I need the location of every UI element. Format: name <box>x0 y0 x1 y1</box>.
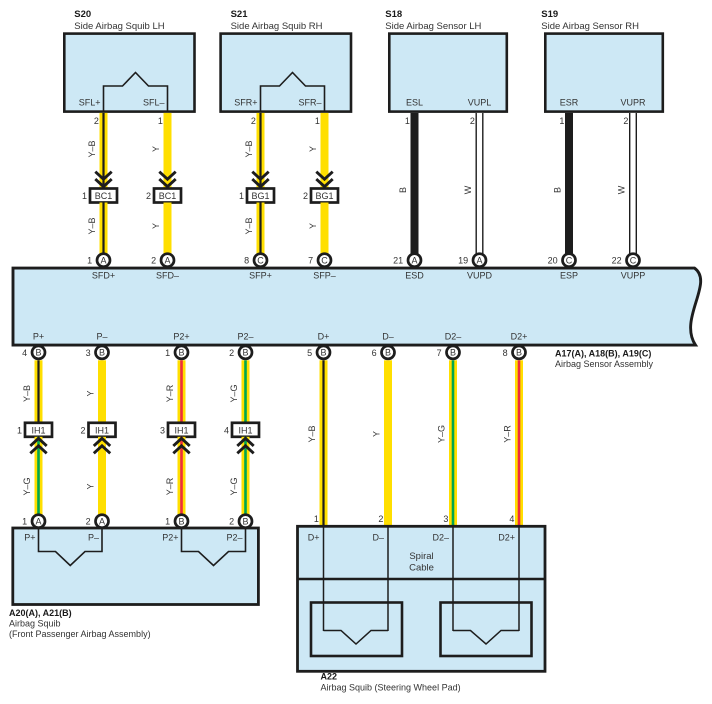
svg-text:Y–B: Y–B <box>244 217 254 234</box>
svg-text:6: 6 <box>372 348 377 358</box>
svg-text:BG1: BG1 <box>315 191 333 201</box>
svg-text:7: 7 <box>437 348 442 358</box>
svg-text:BC1: BC1 <box>95 191 113 201</box>
svg-text:W: W <box>617 185 627 194</box>
svg-text:B: B <box>99 348 105 358</box>
svg-text:D–: D– <box>372 532 384 542</box>
svg-text:S18: S18 <box>385 9 402 20</box>
svg-text:1: 1 <box>559 116 564 126</box>
svg-text:VUPP: VUPP <box>621 271 646 281</box>
svg-text:P+: P+ <box>24 532 35 542</box>
svg-text:Y: Y <box>308 146 318 152</box>
svg-text:P2–: P2– <box>226 532 242 542</box>
svg-text:IH1: IH1 <box>31 426 45 436</box>
svg-text:A17(A), A18(B), A19(C): A17(A), A18(B), A19(C) <box>555 348 651 358</box>
svg-text:3: 3 <box>443 514 448 524</box>
svg-text:A: A <box>99 516 105 526</box>
svg-text:W: W <box>463 185 473 194</box>
svg-text:Y: Y <box>86 390 96 396</box>
svg-text:D2+: D2+ <box>498 532 515 542</box>
svg-text:ESL: ESL <box>406 98 423 108</box>
svg-text:B: B <box>242 348 248 358</box>
svg-text:2: 2 <box>94 116 99 126</box>
svg-text:P–: P– <box>88 532 99 542</box>
svg-text:A: A <box>100 255 106 265</box>
svg-text:VUPL: VUPL <box>468 98 492 108</box>
svg-text:A: A <box>476 255 482 265</box>
svg-text:3: 3 <box>86 348 91 358</box>
svg-text:20: 20 <box>548 256 558 266</box>
svg-text:19: 19 <box>458 256 468 266</box>
svg-text:ESD: ESD <box>405 271 424 281</box>
svg-text:IH1: IH1 <box>238 426 252 436</box>
svg-text:D+: D+ <box>318 331 330 341</box>
svg-text:4: 4 <box>224 426 229 436</box>
svg-text:SFP+: SFP+ <box>249 271 272 281</box>
svg-text:VUPR: VUPR <box>620 98 646 108</box>
svg-text:A20(A), A21(B): A20(A), A21(B) <box>9 608 72 618</box>
svg-text:Y: Y <box>372 431 382 437</box>
svg-text:S19: S19 <box>541 9 558 20</box>
svg-text:B: B <box>516 348 522 358</box>
svg-text:D2–: D2– <box>445 331 462 341</box>
svg-text:Y: Y <box>151 223 161 229</box>
svg-text:22: 22 <box>612 256 622 266</box>
svg-text:ESR: ESR <box>560 98 579 108</box>
svg-text:2: 2 <box>470 116 475 126</box>
svg-text:1: 1 <box>165 348 170 358</box>
svg-text:B: B <box>450 348 456 358</box>
svg-text:B: B <box>178 348 184 358</box>
svg-text:SFR+: SFR+ <box>234 98 257 108</box>
svg-text:C: C <box>257 255 264 265</box>
svg-text:7: 7 <box>308 256 313 266</box>
svg-text:1: 1 <box>315 116 320 126</box>
svg-text:P+: P+ <box>33 331 44 341</box>
svg-text:A: A <box>411 255 417 265</box>
svg-text:Y–B: Y–B <box>87 140 97 157</box>
svg-text:SFP–: SFP– <box>313 271 336 281</box>
svg-text:B: B <box>320 348 326 358</box>
svg-text:2: 2 <box>229 517 234 527</box>
svg-text:Y: Y <box>151 146 161 152</box>
svg-text:SFR–: SFR– <box>298 98 321 108</box>
svg-text:2: 2 <box>623 116 628 126</box>
svg-text:P2+: P2+ <box>173 331 189 341</box>
svg-text:D2+: D2+ <box>511 331 528 341</box>
svg-text:SFD+: SFD+ <box>92 271 115 281</box>
svg-text:8: 8 <box>244 256 249 266</box>
svg-text:2: 2 <box>146 191 151 201</box>
svg-text:A22: A22 <box>321 672 338 682</box>
svg-text:1: 1 <box>87 256 92 266</box>
svg-text:SFL+: SFL+ <box>79 98 101 108</box>
svg-text:SFL–: SFL– <box>143 98 165 108</box>
svg-text:C: C <box>566 255 573 265</box>
svg-text:S20: S20 <box>74 9 91 20</box>
svg-text:1: 1 <box>239 191 244 201</box>
svg-text:Y–G: Y–G <box>22 477 32 495</box>
svg-text:2: 2 <box>303 191 308 201</box>
svg-text:Airbag Squib: Airbag Squib <box>9 619 61 629</box>
svg-text:4: 4 <box>22 348 27 358</box>
svg-text:Side Airbag Squib LH: Side Airbag Squib LH <box>74 21 164 32</box>
svg-text:Spiral: Spiral <box>409 551 433 562</box>
svg-text:Y–B: Y–B <box>244 140 254 157</box>
svg-text:1: 1 <box>405 116 410 126</box>
svg-text:1: 1 <box>165 517 170 527</box>
svg-text:2: 2 <box>151 256 156 266</box>
svg-text:Side Airbag Sensor RH: Side Airbag Sensor RH <box>541 21 639 32</box>
svg-text:3: 3 <box>160 426 165 436</box>
svg-text:5: 5 <box>307 348 312 358</box>
svg-text:B: B <box>398 187 408 193</box>
svg-text:4: 4 <box>509 514 514 524</box>
svg-text:Cable: Cable <box>409 562 434 573</box>
svg-text:D–: D– <box>382 331 394 341</box>
svg-text:Y–G: Y–G <box>437 425 447 443</box>
svg-text:Y–R: Y–R <box>165 477 175 495</box>
svg-text:2: 2 <box>378 514 383 524</box>
svg-text:D+: D+ <box>308 532 320 542</box>
svg-text:VUPD: VUPD <box>467 271 493 281</box>
svg-text:2: 2 <box>80 426 85 436</box>
svg-text:1: 1 <box>314 514 319 524</box>
svg-text:D2–: D2– <box>432 532 449 542</box>
svg-text:Side Airbag Sensor LH: Side Airbag Sensor LH <box>385 21 481 32</box>
svg-text:1: 1 <box>17 426 22 436</box>
svg-text:B: B <box>553 187 563 193</box>
svg-text:P–: P– <box>96 331 107 341</box>
svg-text:Y–B: Y–B <box>87 217 97 234</box>
svg-text:1: 1 <box>22 517 27 527</box>
svg-text:Y–R: Y–R <box>503 425 513 443</box>
svg-text:C: C <box>630 255 637 265</box>
svg-text:(Front Passenger Airbag Assemb: (Front Passenger Airbag Assembly) <box>9 629 151 639</box>
svg-text:B: B <box>35 348 41 358</box>
svg-text:Y–R: Y–R <box>165 384 175 402</box>
svg-text:Y–B: Y–B <box>22 385 32 402</box>
svg-text:2: 2 <box>229 348 234 358</box>
svg-text:B: B <box>178 516 184 526</box>
svg-text:BG1: BG1 <box>251 191 269 201</box>
svg-text:Airbag Sensor Assembly: Airbag Sensor Assembly <box>555 359 654 369</box>
svg-text:C: C <box>321 255 328 265</box>
svg-text:SFD–: SFD– <box>156 271 179 281</box>
svg-text:Y: Y <box>86 483 96 489</box>
svg-text:S21: S21 <box>231 9 249 20</box>
svg-text:2: 2 <box>251 116 256 126</box>
svg-text:P2–: P2– <box>237 331 253 341</box>
svg-text:Y–G: Y–G <box>229 384 239 402</box>
svg-text:P2+: P2+ <box>162 532 178 542</box>
svg-text:BC1: BC1 <box>159 191 177 201</box>
svg-text:B: B <box>242 516 248 526</box>
svg-text:IH1: IH1 <box>95 426 109 436</box>
svg-text:Y–B: Y–B <box>307 425 317 442</box>
svg-text:ESP: ESP <box>560 271 578 281</box>
svg-text:A: A <box>35 516 41 526</box>
svg-text:Airbag Squib (Steering Wheel P: Airbag Squib (Steering Wheel Pad) <box>321 682 461 692</box>
svg-text:IH1: IH1 <box>174 426 188 436</box>
svg-text:B: B <box>385 348 391 358</box>
svg-text:Side Airbag Squib RH: Side Airbag Squib RH <box>231 21 323 32</box>
svg-text:Y–G: Y–G <box>229 477 239 495</box>
svg-text:2: 2 <box>86 517 91 527</box>
svg-text:A: A <box>164 255 170 265</box>
svg-text:Y: Y <box>308 223 318 229</box>
svg-text:1: 1 <box>158 116 163 126</box>
svg-text:21: 21 <box>393 256 403 266</box>
svg-text:8: 8 <box>503 348 508 358</box>
svg-text:1: 1 <box>82 191 87 201</box>
